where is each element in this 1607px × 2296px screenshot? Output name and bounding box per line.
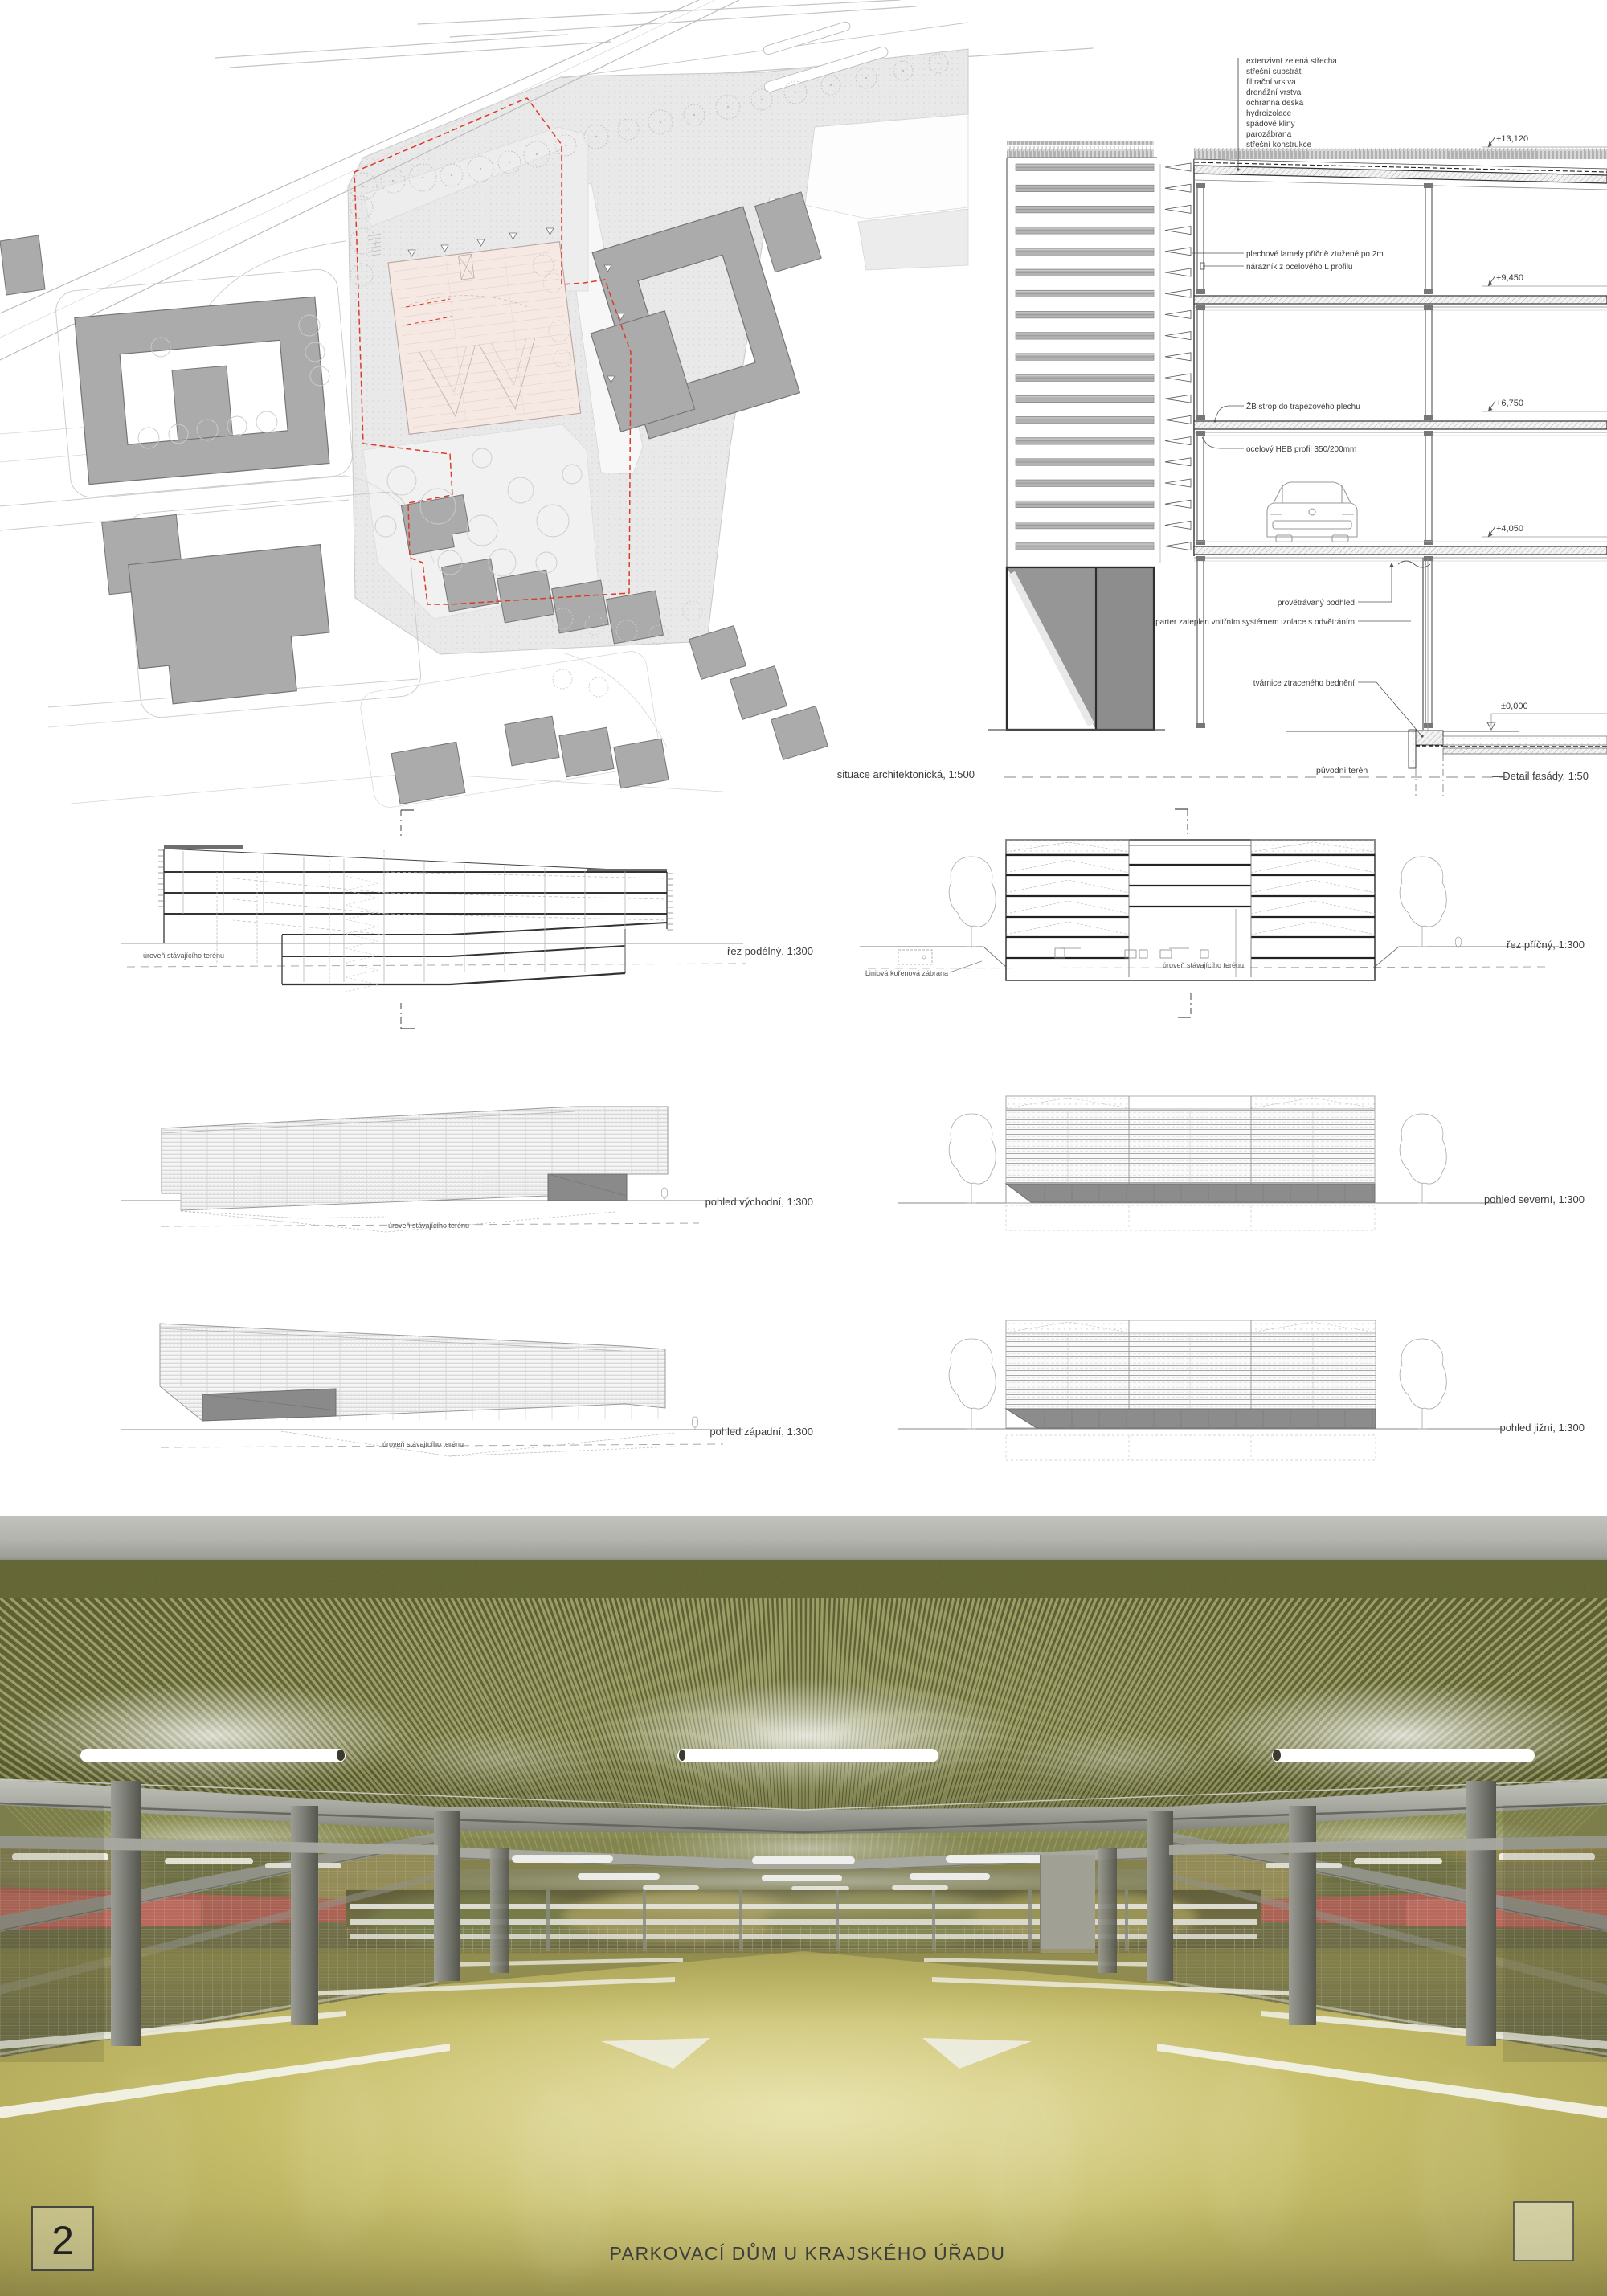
svg-text:úroveň stávajícího terénu: úroveň stávajícího terénu (382, 1440, 464, 1448)
svg-text:řez podélný, 1:300: řez podélný, 1:300 (727, 945, 813, 957)
svg-text:+13,120: +13,120 (1496, 134, 1528, 144)
svg-text:ochranná deska: ochranná deska (1246, 99, 1304, 108)
svg-text:—Detail fasády, 1:50: —Detail fasády, 1:50 (1492, 770, 1589, 782)
svg-text:řez příčný, 1:300: řez příčný, 1:300 (1507, 939, 1585, 951)
svg-text:situace architektonická, 1:500: situace architektonická, 1:500 (837, 768, 975, 780)
svg-text:tvárnice ztraceného bednění: tvárnice ztraceného bednění (1253, 679, 1355, 688)
svg-text:pohled západní, 1:300: pohled západní, 1:300 (709, 1426, 813, 1438)
svg-text:úroveň stávajícího terénu: úroveň stávajícího terénu (388, 1222, 469, 1230)
svg-text:extenzivní zelená střecha: extenzivní zelená střecha (1246, 57, 1337, 66)
svg-text:ŽB strop do trapézového plechu: ŽB strop do trapézového plechu (1246, 401, 1360, 411)
svg-text:parozábrana: parozábrana (1246, 130, 1292, 139)
svg-text:+6,750: +6,750 (1496, 399, 1523, 408)
svg-text:střešní konstrukce: střešní konstrukce (1246, 141, 1312, 149)
svg-text:úroveň stávajícího terénu: úroveň stávajícího terénu (1163, 961, 1244, 969)
svg-text:drenážní vrstva: drenážní vrstva (1246, 88, 1302, 97)
svg-text:pohled východní, 1:300: pohled východní, 1:300 (705, 1196, 813, 1208)
svg-text:parter zateplen vnitřním systé: parter zateplen vnitřním systémem izolac… (1155, 618, 1355, 627)
svg-text:2: 2 (51, 2218, 74, 2263)
svg-text:hydroizolace: hydroizolace (1246, 109, 1292, 118)
svg-text:+4,050: +4,050 (1496, 524, 1523, 534)
svg-text:spádové kliny: spádové kliny (1246, 120, 1295, 129)
svg-text:pohled jižní, 1:300: pohled jižní, 1:300 (1499, 1422, 1585, 1434)
svg-text:nárazník z ocelového L profilu: nárazník z ocelového L profilu (1246, 263, 1353, 272)
svg-text:±0,000: ±0,000 (1501, 702, 1528, 711)
svg-text:PARKOVACÍ DŮM U KRAJSKÉHO ÚŘAD: PARKOVACÍ DŮM U KRAJSKÉHO ÚŘADU (610, 2241, 1006, 2264)
svg-text:+9,450: +9,450 (1496, 273, 1523, 283)
svg-text:plechové lamely příčně ztužené: plechové lamely příčně ztužené po 2m (1246, 250, 1384, 259)
svg-text:pohled severní, 1:300: pohled severní, 1:300 (1484, 1193, 1585, 1205)
svg-text:Liniová kořenová zábrana: Liniová kořenová zábrana (865, 969, 948, 977)
svg-text:střešní substrát: střešní substrát (1246, 68, 1302, 76)
svg-text:úroveň stávajícího terénu: úroveň stávajícího terénu (143, 952, 224, 960)
svg-text:filtrační vrstva: filtrační vrstva (1246, 78, 1296, 87)
svg-text:ocelový HEB profil 350/200mm: ocelový HEB profil 350/200mm (1246, 445, 1356, 454)
svg-text:provětrávaný podhled: provětrávaný podhled (1278, 599, 1355, 608)
svg-text:původní terén: původní terén (1316, 766, 1368, 776)
